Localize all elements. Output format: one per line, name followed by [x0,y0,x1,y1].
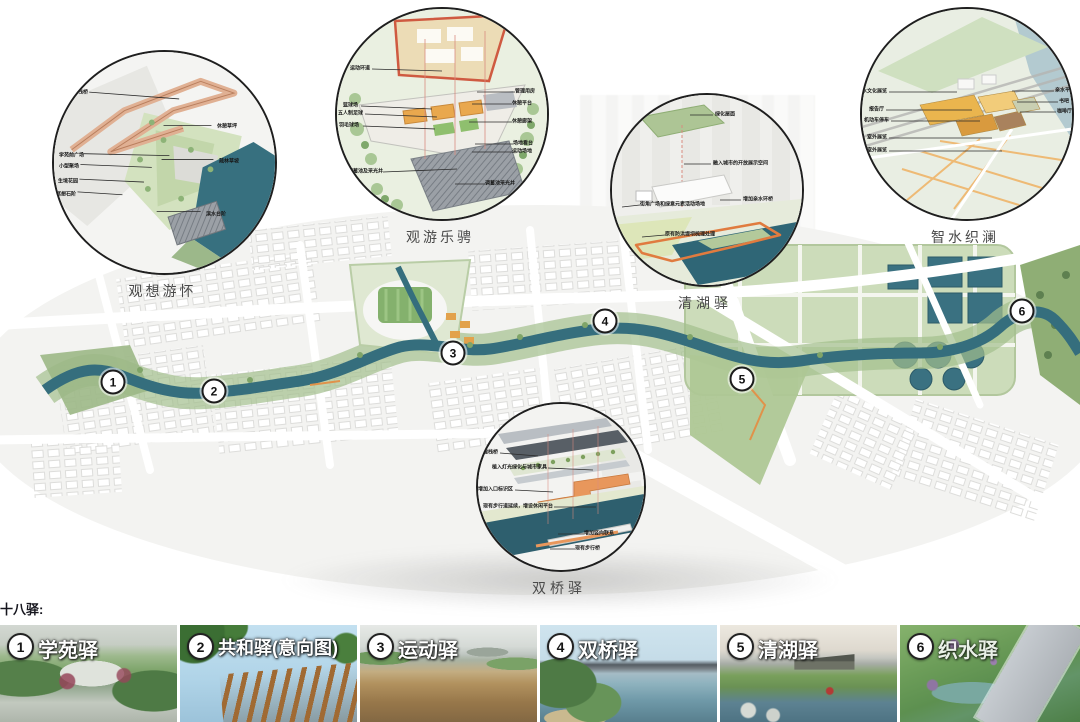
station-number-badge: 5 [727,633,754,660]
station-number-badge: 2 [187,633,214,660]
diagram-label: 小型聚场 [59,164,79,169]
station-name: 共和驿(意向图) [218,634,338,660]
station-card-1: 1 学苑驿 [0,625,177,722]
marker-number: 5 [739,372,746,386]
diagram-label: 冥想石阶 [56,192,76,197]
masterplan-poster: 1 2 3 4 5 6 [0,0,1080,722]
map-marker-5: 5 [730,367,755,392]
diagram-label: 滨水台阶 [206,212,226,217]
map-marker-6: 6 [1010,299,1035,324]
diagram-label: 星河栈桥 [68,90,88,95]
callout-guanyou-lecheng: 运动环道 管理用房 休憩平台 篮球场 五人制足球 羽毛球场 休憩廊架 场地看台 … [335,7,545,247]
diagram-label: 绿化屋面 [715,112,735,117]
callout-zhishui-zhilan: 水文化展览 报告厅 机动车停车 室外展览 室外展览 亲水平台 书吧 咖啡厅 智水… [860,7,1070,247]
diagram-label: 疏林草坡 [219,159,239,164]
station-card-3: 3 运动驿 [360,625,537,722]
callout-diagram: 运动环道 管理用房 休憩平台 篮球场 五人制足球 羽毛球场 休憩廊架 场地看台 … [335,7,549,221]
station-name: 织水驿 [938,634,998,663]
diagram-label: 报告厅 [869,107,884,112]
diagram-label: 休憩草坪 [217,124,237,129]
callout-title: 观游乐骋 [335,227,545,247]
marker-number: 3 [450,346,457,360]
map-marker-2: 2 [202,379,227,404]
marker-number: 1 [110,375,117,389]
diagram-label: 学苑前广场 [59,153,84,158]
diagram-label: 水文化展览 [862,89,887,94]
diagram-label: 增加入口标识区 [478,487,513,492]
station-name: 清湖驿 [758,634,818,663]
station-strip: 1 学苑驿 2 共和驿(意向图) 3 运动驿 4 双桥驿 5 清湖驿 6 织水驿 [0,625,1080,722]
diagram-label: 运动场地 [512,149,532,154]
callout-diagram: 水文化展览 报告厅 机动车停车 室外展览 室外展览 亲水平台 书吧 咖啡厅 [860,7,1074,221]
diagram-label: 机动车停车 [864,118,889,123]
diagram-label: 休憩平台 [512,101,532,106]
diagram-label: 书吧 [1059,99,1069,104]
diagram-label: 羽毛球场 [339,123,359,128]
callout-title: 观想游怀 [52,281,273,301]
map-marker-4: 4 [593,309,618,334]
callout-title: 清湖驿 [610,293,800,313]
diagram-label: 融入城市的开放展示空间 [713,161,768,166]
diagram-label: 五人制足球 [338,111,363,116]
diagram-label: 篮球场 [343,103,358,108]
diagram-label: 场地看台 [513,141,533,146]
station-card-6: 6 织水驿 [900,625,1080,722]
marker-number: 4 [602,314,609,328]
map-marker-3: 3 [441,341,466,366]
station-number-badge: 6 [907,633,934,660]
diagram-label: 调蓄池采光井 [485,181,515,186]
diagram-label: 室外展览 [867,148,887,153]
diagram-label: 现有步行桥 [575,546,600,551]
station-number-badge: 1 [7,633,34,660]
diagram-label: 室外展览 [867,135,887,140]
station-number-badge: 4 [547,633,574,660]
diagram-label: 原有防洪堤坝梳理处理 [665,232,715,237]
station-card-2: 2 共和驿(意向图) [180,625,357,722]
map-marker-1: 1 [101,370,126,395]
diagram-label: 咖啡厅 [1057,109,1072,114]
diagram-label: 现有步行道延续，增设休闲平台 [483,504,553,509]
callout-title: 智水织澜 [860,227,1070,247]
diagram-label: 增加竖向联系 [584,531,614,536]
callout-diagram: 星河栈桥 休憩草坪 学苑前广场 疏林草坡 小型聚场 生境花园 冥想石阶 滨水台阶 [52,50,277,275]
diagram-label: 休憩廊架 [512,119,532,124]
station-card-5: 5 清湖驿 [720,625,897,722]
diagram-label: 增加亲水环桥 [743,197,773,202]
station-name: 学苑驿 [38,634,98,663]
callout-diagram: 新建栈桥 植入灯光绿化与城市家具 增加入口标识区 现有步行道延续，增设休闲平台 … [476,402,646,572]
station-card-4: 4 双桥驿 [540,625,717,722]
callout-shuangqiao-yi: 新建栈桥 植入灯光绿化与城市家具 增加入口标识区 现有步行道延续，增设休闲平台 … [476,402,642,598]
station-number-badge: 3 [367,633,394,660]
diagram-label: 管理用房 [515,89,535,94]
callout-qinghu-yi: 绿化屋面 融入城市的开放展示空间 增加亲水环桥 街角广场和绿意元素活动场地 原有… [610,93,800,313]
marker-number: 6 [1019,304,1026,318]
diagram-label: 植入灯光绿化与城市家具 [492,465,547,470]
station-name: 双桥驿 [578,634,638,663]
diagram-label: 生境花园 [58,179,78,184]
station-name: 运动驿 [398,634,458,663]
callout-title: 双桥驿 [476,578,642,598]
diagram-label: 亲水平台 [1055,88,1074,93]
diagram-label: 运动环道 [350,66,370,71]
callout-diagram: 绿化屋面 融入城市的开放展示空间 增加亲水环桥 街角广场和绿意元素活动场地 原有… [610,93,804,287]
section-title: 十八驿: [0,599,43,618]
diagram-label: 街角广场和绿意元素活动场地 [640,202,705,207]
callout-guanxiang-youhuai: 星河栈桥 休憩草坪 学苑前广场 疏林草坡 小型聚场 生境花园 冥想石阶 滨水台阶… [52,50,273,301]
diagram-label: 调蓄池及采光井 [348,169,383,174]
marker-number: 2 [211,384,218,398]
diagram-label: 新建栈桥 [478,450,498,455]
